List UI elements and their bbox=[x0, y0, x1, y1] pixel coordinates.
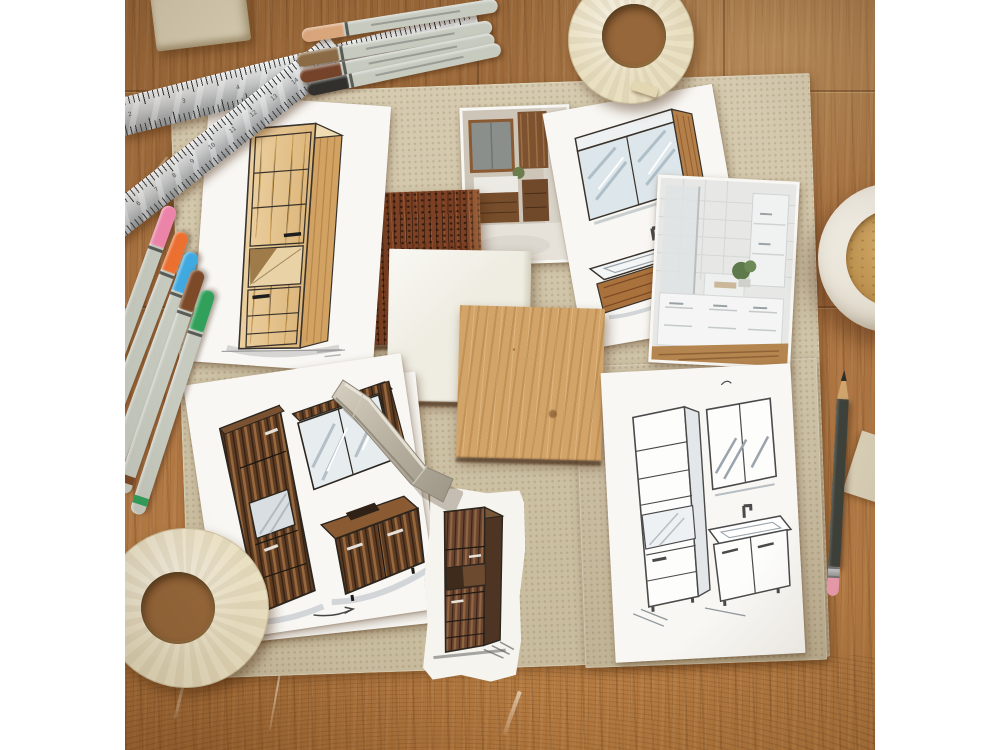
photo-white-bathroom-image bbox=[648, 174, 800, 369]
pencil-eraser bbox=[827, 578, 840, 597]
ruler-number: 4 bbox=[235, 84, 240, 92]
ruler-number: 6 bbox=[135, 200, 142, 208]
line-set-drawing bbox=[601, 363, 806, 663]
marker-ring bbox=[344, 22, 349, 36]
sketch-line-set bbox=[601, 363, 806, 663]
pencil-body bbox=[828, 399, 849, 567]
eraser-block bbox=[150, 0, 251, 52]
tape-core bbox=[602, 4, 666, 68]
ruler-number: 8 bbox=[171, 172, 178, 180]
furniture-handle bbox=[323, 372, 463, 512]
tape-core bbox=[141, 572, 215, 644]
sample-oak bbox=[456, 305, 605, 461]
marker-ring bbox=[339, 46, 344, 60]
ruler-number: 7 bbox=[153, 186, 160, 194]
marker-band bbox=[125, 473, 135, 485]
tape-tab bbox=[631, 80, 659, 98]
ruler-number: 2 bbox=[127, 111, 132, 119]
screenshot: 2345678 456789101112131415 bbox=[0, 0, 1000, 750]
marker-ring bbox=[349, 73, 355, 87]
marker-band bbox=[132, 495, 149, 507]
pencil-ferrule bbox=[827, 567, 840, 579]
sketch-walnut-cabinet bbox=[421, 487, 528, 682]
coffee-cup bbox=[818, 183, 875, 335]
pencil-lead bbox=[841, 370, 848, 381]
photo-white-bathroom bbox=[648, 174, 800, 369]
ruler-number: 9 bbox=[189, 158, 196, 166]
ruler-number: 3 bbox=[181, 97, 186, 105]
walnut-cabinet-drawing bbox=[421, 487, 528, 682]
moodboard-photo: 2345678 456789101112131415 bbox=[125, 0, 875, 750]
